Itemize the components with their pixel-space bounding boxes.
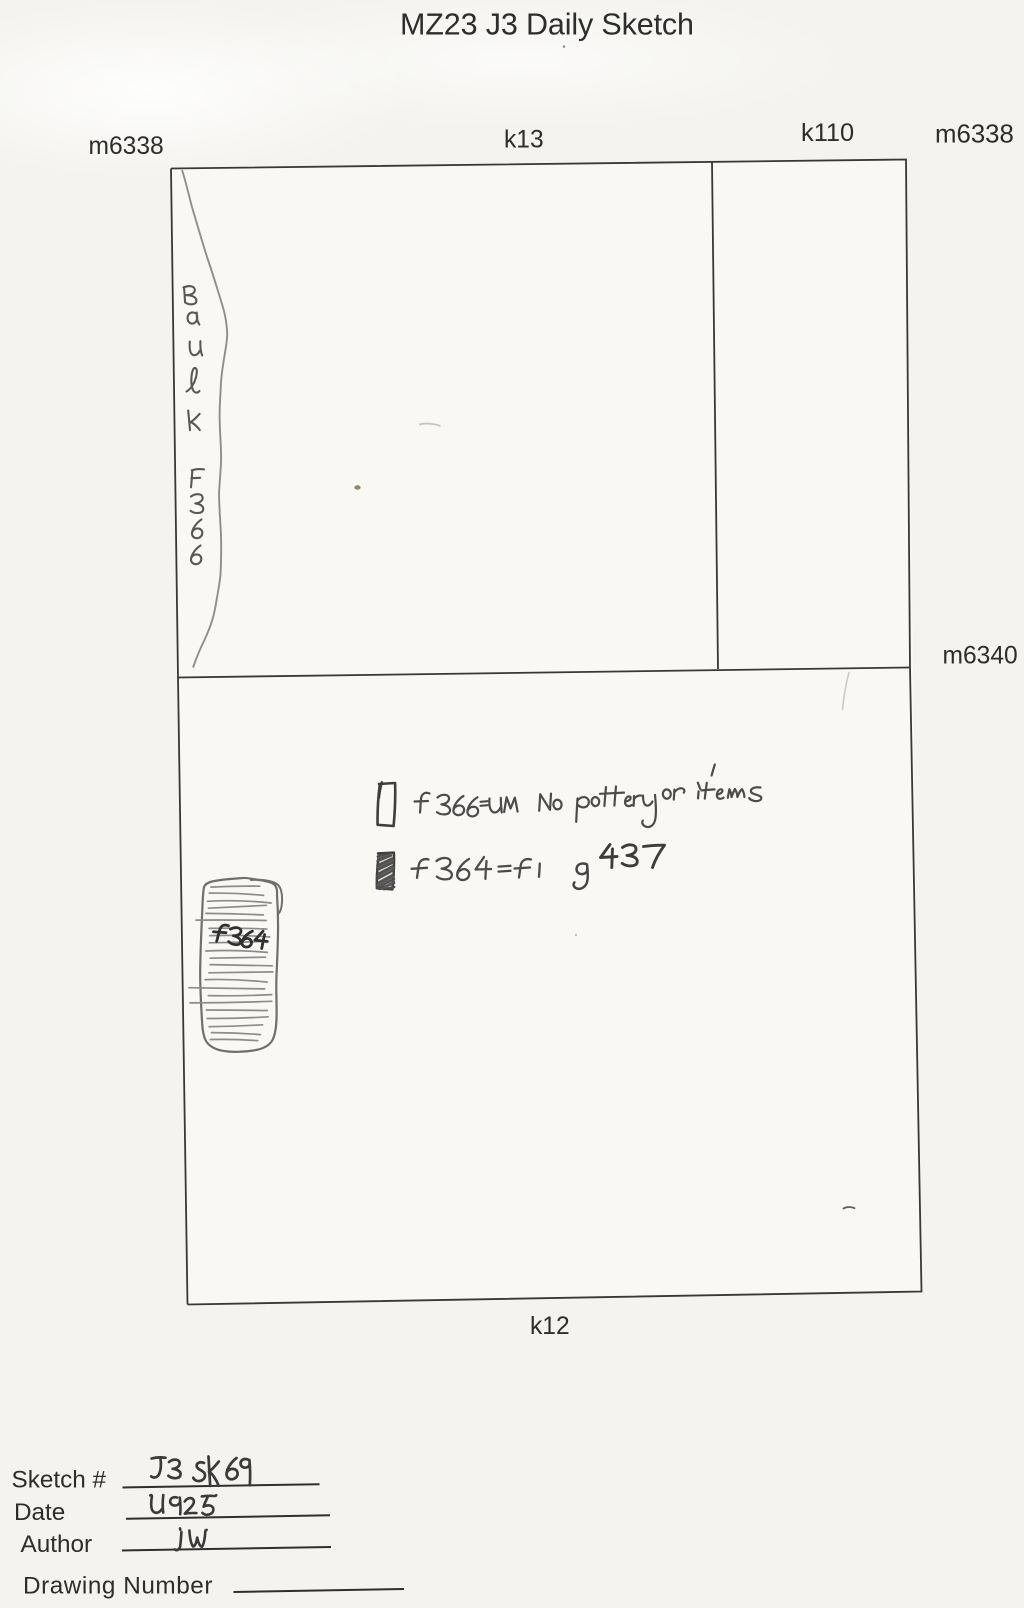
svg-text:Author: Author [21,1531,93,1558]
svg-text:Sketch #: Sketch # [12,1467,107,1494]
svg-text:k13: k13 [504,127,544,154]
svg-text:MZ23 J3 Daily Sketch: MZ23 J3 Daily Sketch [400,8,694,42]
svg-text:m6340: m6340 [943,643,1018,670]
svg-text:Date: Date [14,1499,65,1526]
svg-text:Drawing Number: Drawing Number [23,1573,213,1600]
svg-text:m6338: m6338 [89,133,164,160]
svg-text:k110: k110 [801,119,854,147]
svg-text:m6338: m6338 [935,120,1014,148]
svg-text:k12: k12 [530,1313,570,1340]
